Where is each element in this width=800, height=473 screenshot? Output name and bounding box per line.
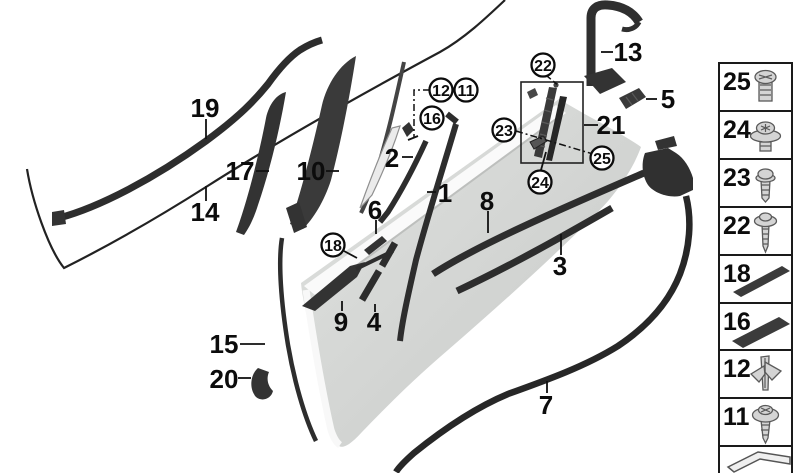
part-16-clip-target: [402, 122, 414, 137]
callout-10[interactable]: 10: [297, 156, 326, 186]
svg-text:23: 23: [495, 123, 513, 140]
callout-8[interactable]: 8: [480, 186, 494, 216]
svg-text:16: 16: [423, 111, 441, 128]
part-5-wedge: [619, 88, 646, 109]
callout-5[interactable]: 5: [661, 84, 675, 114]
callout-13[interactable]: 13: [614, 37, 643, 67]
callout-circle-25[interactable]: 25: [591, 147, 614, 170]
callout-9[interactable]: 9: [334, 307, 348, 337]
svg-text:18: 18: [723, 260, 751, 288]
callout-circle-12[interactable]: 12: [430, 79, 453, 102]
legend-row-16[interactable]: 16: [719, 303, 792, 351]
svg-text:23: 23: [723, 164, 751, 192]
callout-circle-11[interactable]: 11: [455, 79, 478, 102]
part-10-a-pillar-trim: [290, 56, 356, 229]
legend-row-18[interactable]: 18: [719, 255, 792, 303]
callout-circle-18[interactable]: 18: [322, 234, 345, 257]
legend-row-extra[interactable]: [719, 446, 792, 473]
part-19-seal: [59, 40, 322, 218]
svg-text:22: 22: [534, 58, 552, 75]
callout-3[interactable]: 3: [553, 251, 567, 281]
fastener-legend: 25 24 23: [719, 63, 792, 473]
svg-text:16: 16: [723, 308, 751, 336]
rail-top-wedge: [527, 88, 538, 99]
svg-text:25: 25: [593, 151, 611, 168]
svg-text:12: 12: [723, 355, 751, 383]
callout-1[interactable]: 1: [438, 178, 452, 208]
callout-20[interactable]: 20: [210, 364, 239, 394]
legend-row-12[interactable]: 12: [719, 350, 792, 398]
svg-text:12: 12: [432, 83, 450, 100]
callout-17[interactable]: 17: [226, 156, 255, 186]
callout-circle-23[interactable]: 23: [493, 119, 516, 142]
corner-bracket: [643, 148, 693, 196]
legend-row-24[interactable]: 24: [719, 111, 792, 159]
callout-7[interactable]: 7: [539, 390, 553, 420]
part-20-bracket: [251, 368, 273, 399]
parts-diagram-page: 19 14 17 10 2 1 6 9 4 8 3 15 20 7 13 5 2…: [0, 0, 800, 473]
callout-19[interactable]: 19: [191, 93, 220, 123]
callout-2[interactable]: 2: [385, 143, 399, 173]
svg-text:24: 24: [723, 116, 751, 144]
callout-6[interactable]: 6: [368, 195, 382, 225]
callout-4[interactable]: 4: [367, 307, 382, 337]
corner-bracket-tab: [655, 136, 677, 150]
callout-circle-24[interactable]: 24: [529, 171, 552, 194]
svg-text:18: 18: [324, 238, 342, 255]
legend-row-22[interactable]: 22: [719, 207, 792, 255]
svg-text:22: 22: [723, 212, 751, 240]
callout-14[interactable]: 14: [191, 197, 220, 227]
callout-circle-16[interactable]: 16: [421, 107, 444, 130]
legend-row-23[interactable]: 23: [719, 159, 792, 207]
svg-text:24: 24: [531, 175, 549, 192]
part-19-endcap: [52, 210, 66, 226]
callout-21[interactable]: 21: [597, 110, 626, 140]
diagram-canvas: 19 14 17 10 2 1 6 9 4 8 3 15 20 7 13 5 2…: [0, 0, 800, 473]
callout-circle-22[interactable]: 22: [532, 54, 555, 77]
legend-row-25[interactable]: 25: [719, 63, 792, 111]
svg-text:25: 25: [723, 68, 751, 96]
legend-row-11[interactable]: 11: [719, 398, 792, 446]
svg-text:11: 11: [723, 403, 750, 431]
svg-text:11: 11: [458, 83, 475, 100]
callout-15[interactable]: 15: [210, 329, 239, 359]
